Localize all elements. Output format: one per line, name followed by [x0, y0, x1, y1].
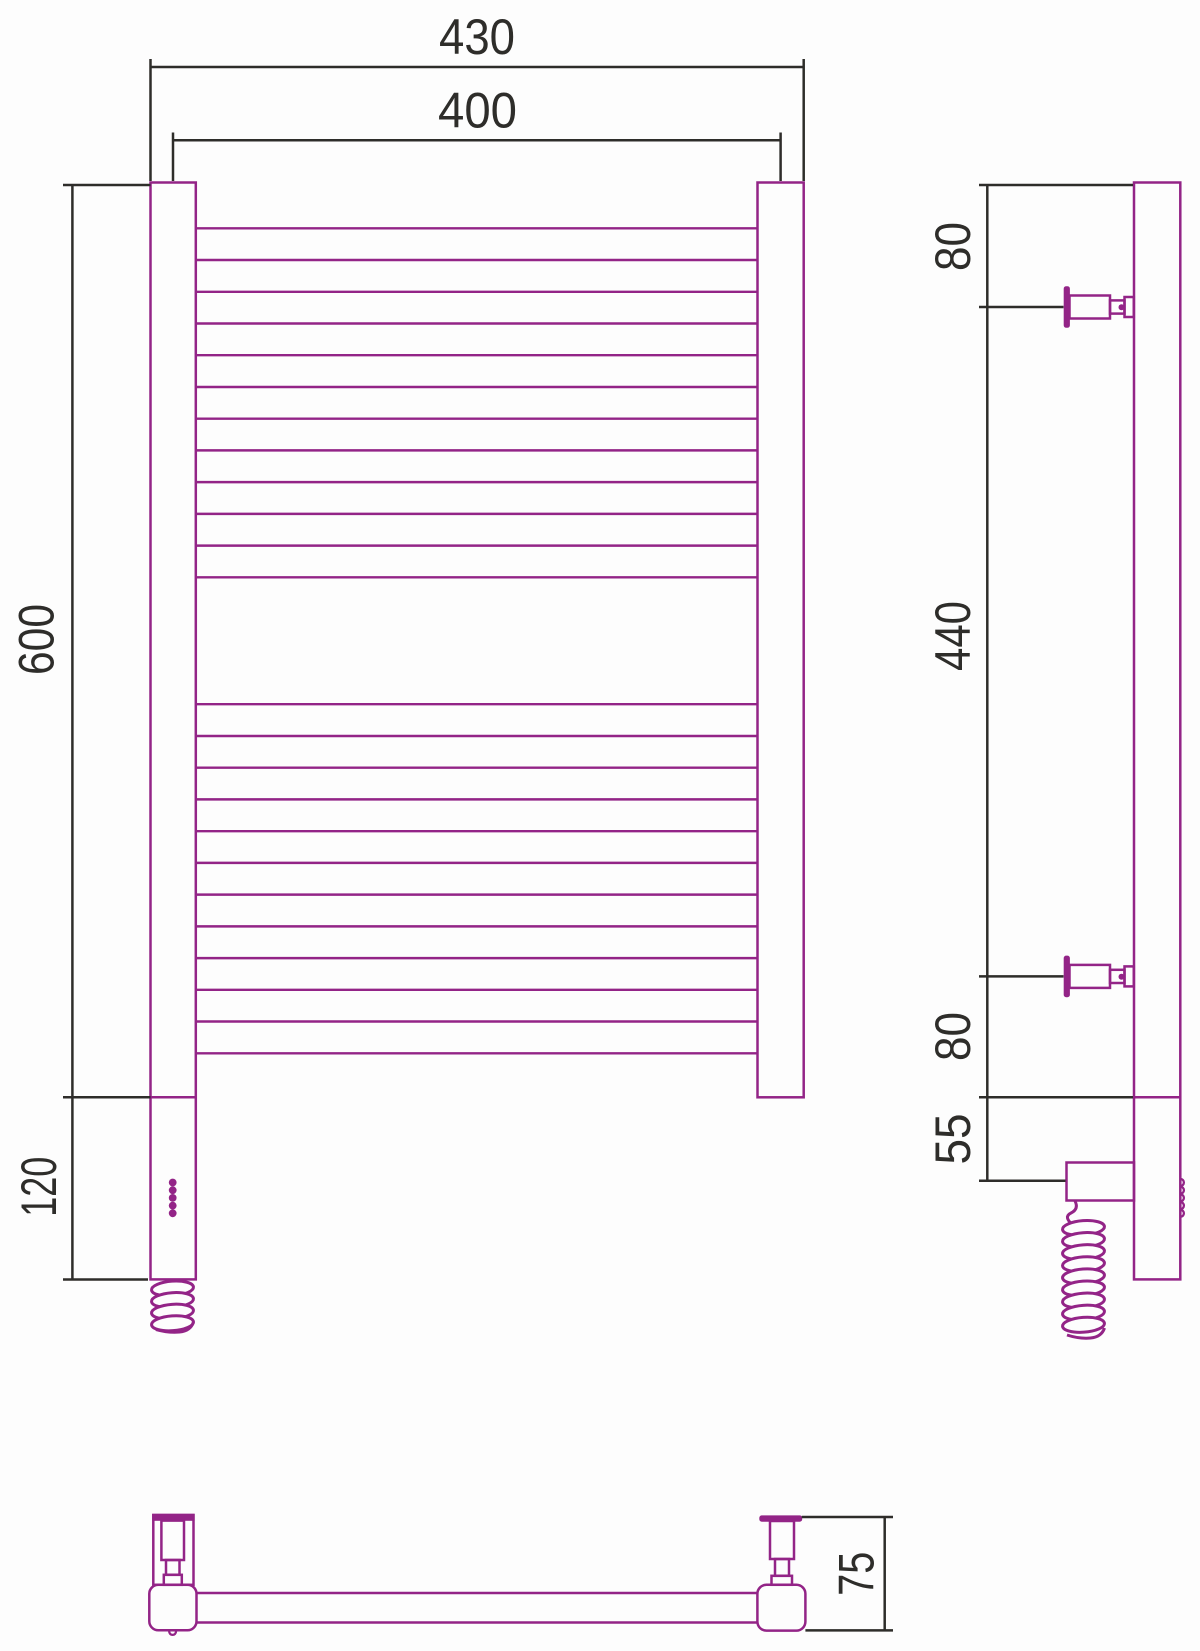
- svg-text:120: 120: [11, 1157, 67, 1217]
- svg-text:80: 80: [925, 1012, 981, 1061]
- svg-text:440: 440: [925, 601, 981, 671]
- svg-text:80: 80: [925, 222, 981, 271]
- svg-text:600: 600: [9, 604, 65, 675]
- svg-text:400: 400: [438, 83, 517, 139]
- svg-text:55: 55: [925, 1114, 981, 1165]
- svg-text:75: 75: [829, 1552, 885, 1596]
- svg-text:430: 430: [439, 9, 515, 65]
